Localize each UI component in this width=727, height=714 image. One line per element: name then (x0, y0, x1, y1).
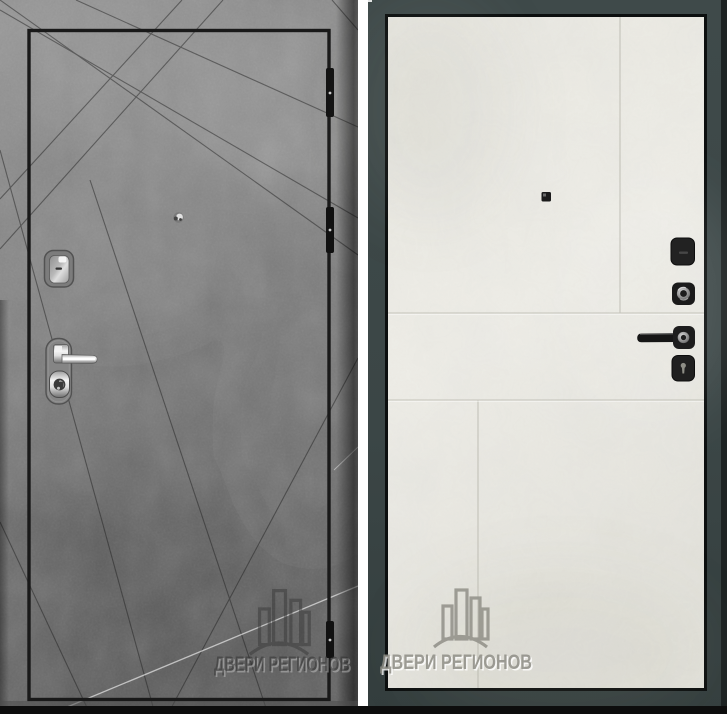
svg-text:ДВЕРИ РЕГИОНОВ: ДВЕРИ РЕГИОНОВ (214, 653, 350, 676)
svg-text:ДВЕРИ РЕГИОНОВ: ДВЕРИ РЕГИОНОВ (380, 651, 532, 674)
